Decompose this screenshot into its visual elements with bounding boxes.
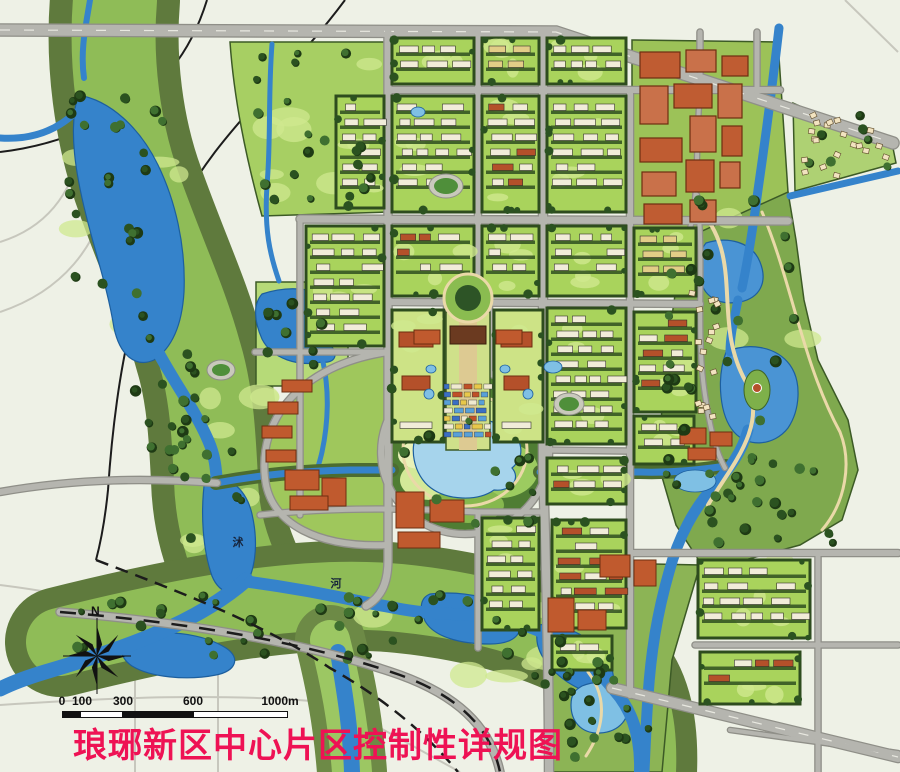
commercial-building [720,162,740,188]
tree [531,672,537,678]
block-lawn [488,525,513,533]
building [492,134,512,141]
building [777,583,796,590]
tree-row [396,141,470,145]
block-tree [546,203,551,208]
building [575,376,586,383]
tree [523,517,532,526]
block-tree [350,95,357,102]
tree [516,457,522,463]
tree [186,362,193,369]
tree [305,148,310,153]
tree [829,539,835,545]
building [580,234,593,241]
tree [557,657,565,665]
tree [665,456,670,461]
market-stall [444,392,451,397]
tree [260,179,269,188]
market-stall [472,424,482,429]
building [417,149,428,156]
civic-building [285,470,319,490]
building [363,234,379,241]
tree-row [556,550,622,554]
building [574,104,588,111]
commercial-building [644,204,682,224]
tree-row [638,342,692,346]
building [774,660,793,667]
lawn-patch [450,662,487,688]
block-tree [389,174,399,184]
cottage [813,120,820,126]
market-stall [464,384,472,389]
block-tree [334,115,342,123]
block-tree [799,559,804,564]
tree-row [486,533,535,537]
civic-building [710,432,732,446]
tree-row [551,241,622,245]
building [640,236,656,243]
tree [291,58,298,65]
block-tree [390,366,398,374]
block-tree [568,79,573,84]
tree-row [551,68,622,72]
tree [253,76,260,83]
tree-row [486,241,535,245]
civic-building [548,598,574,632]
block-tree [788,632,796,640]
tree-row [638,273,692,277]
building [453,61,471,68]
block-tree [608,439,614,445]
tree [560,692,566,698]
building [607,249,625,256]
scale-bar-segment [123,711,193,718]
tree [97,279,107,289]
building [584,134,598,141]
building [332,234,354,241]
commercial-building [640,86,668,124]
building [663,236,676,243]
block-tree [691,363,697,369]
tree [502,648,512,658]
building [312,234,328,241]
building [755,660,769,667]
tree [353,160,362,169]
tree [549,669,554,674]
building [749,568,767,575]
tree [592,675,601,684]
tree [780,232,788,240]
building [590,528,609,535]
block-tree [606,225,612,231]
building [575,603,594,610]
building [571,61,582,68]
tree-row [486,256,535,260]
tree-row [396,126,470,130]
tree [713,537,723,547]
building [588,361,606,368]
tree [688,266,694,272]
tree [883,162,891,170]
building [558,558,580,565]
lawn-patch [199,387,221,409]
tree [785,263,792,270]
building [553,104,566,111]
tree [228,447,235,454]
tree [139,312,144,317]
tree [309,347,316,354]
tree [857,112,862,117]
pond [424,389,434,399]
lawn-patch [169,166,188,182]
building [659,424,677,431]
building [598,603,613,610]
building [442,104,463,111]
building [493,264,507,271]
cottage [863,148,870,154]
pond [523,389,533,399]
tree [673,481,679,487]
tree-row [551,156,622,160]
block-tree [580,517,590,527]
tree-row [638,357,692,361]
tree [247,616,254,623]
compass-north-label: N [91,604,100,618]
building [704,613,721,620]
building [402,164,416,171]
tree-row [551,111,622,115]
building [345,119,358,126]
scale-tick-label: 600 [183,694,203,708]
tree [181,415,189,423]
cottage [709,413,716,419]
tree-row [551,353,622,357]
tree [201,474,210,483]
tree-row [551,171,622,175]
tree-row [396,256,470,260]
building [743,598,762,605]
building [312,249,334,256]
building [517,526,536,533]
market-stall [455,424,462,429]
building [427,61,447,68]
tree-row [310,286,380,290]
tree [158,380,167,389]
building [492,179,503,186]
building [426,164,442,171]
building [519,541,530,548]
scale-tick-label: 300 [113,694,133,708]
tree [399,447,409,457]
tree [199,592,205,598]
building [639,335,657,342]
civic-building [634,560,656,586]
commercial-building [642,172,676,196]
building [489,46,506,53]
lawn-patch [521,657,541,670]
tree [740,524,749,533]
commercial-building [722,126,742,156]
tree [209,651,218,660]
building [642,424,656,431]
tree-row [556,580,622,584]
building [574,119,595,126]
tree [705,469,713,477]
civic-building [262,426,292,438]
tree [431,494,441,504]
block-tree [794,695,802,703]
tree-row [486,156,535,160]
building [314,279,334,286]
building [554,61,565,68]
tree [316,604,325,613]
tree [253,108,263,118]
building [490,601,503,608]
tree-row [486,68,535,72]
building [440,46,455,53]
building [362,164,377,171]
block-tree [633,375,639,381]
block-tree [379,174,385,180]
tree [128,229,136,237]
tree-row [486,578,535,582]
tree [288,300,294,306]
tree [684,382,693,391]
building [513,46,530,53]
block-tree [469,147,475,153]
tree [126,237,132,243]
tree [723,357,733,367]
block-tree [699,664,704,669]
tree [665,375,671,381]
tree [518,628,525,635]
pavilion [753,384,762,393]
building [771,613,784,620]
block-tree [642,415,648,421]
market-stall [444,384,449,389]
building [586,61,597,68]
building [398,179,417,186]
tree [415,616,421,622]
building [515,119,535,126]
tree [564,673,569,678]
tree-row [702,575,806,579]
market-stall [465,408,474,413]
tree [566,720,573,727]
market-stall [454,408,463,413]
market-stall [444,400,450,405]
civic-building [266,450,296,462]
tree [261,649,267,655]
market-stall [485,424,491,429]
tree [567,737,576,746]
building [508,179,522,186]
tree [645,725,651,731]
market-stall [474,384,482,389]
tree [389,636,397,644]
block-tree [469,49,475,55]
building [720,598,740,605]
building [316,309,329,316]
building [704,568,723,575]
tree-row [396,241,470,245]
tree [269,195,278,204]
building [556,376,570,383]
building [665,335,688,342]
block-tree [503,515,512,524]
building [313,294,326,301]
block-tree [428,308,437,317]
block-tree [537,359,544,366]
building [560,573,581,580]
building [342,179,357,186]
building [574,481,595,488]
tree-row [486,608,535,612]
block-lawn [417,314,443,325]
block-tree [480,126,487,133]
civic-building [402,376,430,390]
building [397,249,409,256]
map-title: 琅琊新区中心片区控制性详规图 [73,729,563,763]
building [600,406,612,413]
tree [168,422,176,430]
tree-row [551,53,622,57]
block-tree [749,699,755,705]
tree-row [551,271,622,275]
building [513,104,527,111]
building [340,309,359,316]
building [400,119,410,126]
block-tree [413,291,418,296]
block-tree [390,60,398,68]
building [578,466,599,473]
tree-row [702,620,806,624]
tree [737,482,742,487]
building [554,481,569,488]
scale-bar-segment [193,711,288,718]
building [606,134,619,141]
building [414,119,434,126]
building [595,421,608,428]
block-tree [547,224,556,233]
building [601,234,612,241]
tree-row [638,243,692,247]
building [583,331,597,338]
civic-building [290,496,328,510]
cottage [813,138,819,144]
scale-tick-label: 1000m [261,694,298,708]
tree [733,316,743,326]
block-tree [523,289,532,298]
block-tree [482,37,488,43]
building [734,660,751,667]
block-tree [691,327,697,333]
tree-row [396,111,470,115]
building [401,61,418,68]
block-tree [804,582,812,590]
cottage [856,143,863,149]
tree [471,519,480,528]
tree-row [704,682,796,686]
tree [142,166,148,172]
commercial-building [640,138,682,162]
building [363,249,377,256]
block-tree [604,206,611,213]
tree [345,192,354,201]
tree [609,676,618,685]
block-tree [492,433,500,441]
building [489,249,500,256]
tree [201,415,208,422]
pond [544,361,562,373]
building [489,234,506,241]
building [517,149,536,156]
tree [320,136,330,146]
block-tree [391,419,397,425]
tree-row [702,590,806,594]
building [581,149,603,156]
block-tree [620,467,627,474]
block-tree [619,456,629,466]
tree [294,50,299,55]
block-tree [557,79,563,85]
cottage [801,169,808,175]
tree-row [551,256,622,260]
tree-row [638,258,692,262]
building [577,179,597,186]
tree [145,419,152,426]
tree [589,733,599,743]
tree [540,679,549,688]
plan-map-svg [0,0,900,772]
civic-building [496,330,522,344]
tree [67,110,73,116]
tree-row [486,53,535,57]
tree [65,189,73,197]
building [554,264,568,271]
tree [794,463,805,474]
block-tree [512,437,519,444]
plaza-green [455,285,481,311]
tree [341,49,348,56]
block-tree [649,227,655,233]
tree [190,393,198,401]
tree-row [551,141,622,145]
tree [70,98,75,103]
building [552,179,571,186]
civic-building [282,380,312,392]
building [400,234,415,241]
tree [158,117,166,125]
tree [202,450,212,460]
block-tree [480,597,488,605]
block-tree [620,531,628,539]
commercial-building [686,50,716,72]
pond [426,365,436,373]
tree [728,494,734,500]
block-tree [568,519,575,526]
building [346,104,356,111]
building [590,376,601,383]
tree-row [486,593,535,597]
tree [183,435,191,443]
building [605,588,628,595]
building [402,149,412,156]
civic-building [268,402,298,414]
tree [694,195,704,205]
tree [425,432,432,439]
building [515,134,536,141]
